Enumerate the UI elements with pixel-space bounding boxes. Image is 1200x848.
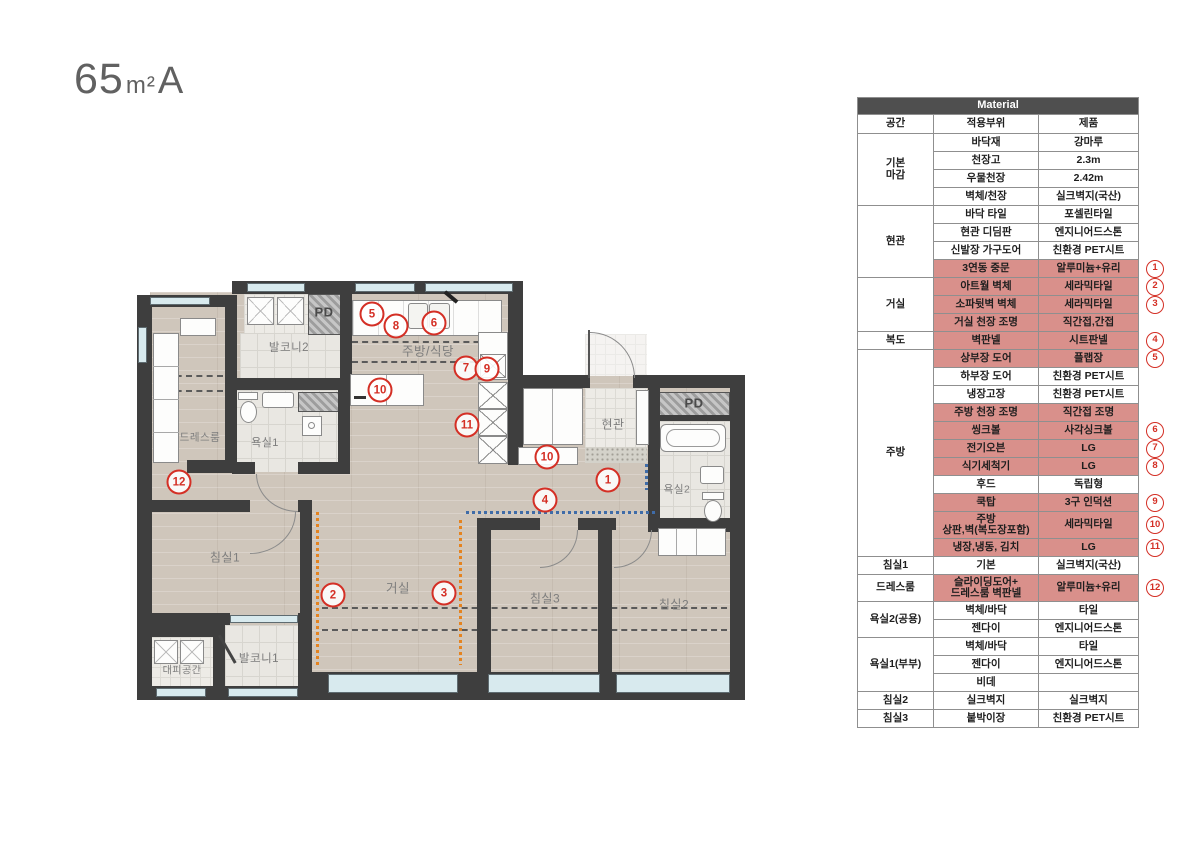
circled-number: 6	[1146, 422, 1164, 440]
cell-space: 드레스룸	[858, 575, 934, 602]
cell-part: 식기세척기	[934, 458, 1039, 476]
cell-number	[1139, 188, 1172, 206]
plan-marker-4: 4	[533, 488, 558, 513]
cell-part: 쿡탑	[934, 494, 1039, 512]
column-header-part: 적용부위	[934, 115, 1039, 134]
cell-space: 기본 마감	[858, 134, 934, 206]
wardrobe-shelf	[153, 366, 179, 367]
window	[247, 283, 305, 292]
circled-number: 5	[1146, 350, 1164, 368]
cell-number	[1139, 638, 1172, 656]
cell-part: 벽판넬	[934, 332, 1039, 350]
cell-space: 욕실2(공용)	[858, 602, 934, 638]
material-row: 욕실2(공용)벽체/바닥타일	[858, 602, 1172, 620]
cell-space: 침실1	[858, 557, 934, 575]
cell-product: 타일	[1039, 638, 1139, 656]
sink-icon	[700, 466, 724, 484]
cell-product: 세라믹타일	[1039, 296, 1139, 314]
cell-part: 천장고	[934, 152, 1039, 170]
cell-product: LG	[1039, 539, 1139, 557]
room-label-pd-right: PD	[684, 396, 703, 411]
ceiling-dash	[322, 629, 737, 631]
cell-part: 비데	[934, 674, 1039, 692]
wardrobe	[153, 333, 179, 463]
room-label-pd-left: PD	[314, 305, 333, 320]
cell-product: 타일	[1039, 602, 1139, 620]
cell-number	[1139, 710, 1172, 728]
cell-product: 엔지니어드스톤	[1039, 656, 1139, 674]
cell-product: 2.3m	[1039, 152, 1139, 170]
column-header-space: 공간	[858, 115, 934, 134]
closet-divider	[696, 529, 697, 555]
room-label-balcony2: 발코니2	[269, 339, 309, 355]
cell-product: 실크벽지	[1039, 692, 1139, 710]
plan-marker-3: 3	[432, 581, 457, 606]
cell-part: 붙박이장	[934, 710, 1039, 728]
cell-product: 플랩장	[1039, 350, 1139, 368]
toilet-tank-icon	[238, 392, 258, 400]
sofawall-marker-line	[459, 520, 462, 665]
dryer-icon	[277, 297, 304, 325]
material-row: 드레스룸슬라이딩도어+ 드레스룸 벽판넬알루미늄+유리12	[858, 575, 1172, 602]
cell-part: 기본	[934, 557, 1039, 575]
shoe-closet	[523, 388, 583, 445]
window	[156, 688, 206, 697]
cell-part: 주방 천장 조명	[934, 404, 1039, 422]
circled-number: 12	[1146, 579, 1164, 597]
cell-product: 강마루	[1039, 134, 1139, 152]
cell-space: 침실3	[858, 710, 934, 728]
cell-number: 11	[1139, 539, 1172, 557]
cell-number: 2	[1139, 278, 1172, 296]
wall	[137, 500, 250, 512]
cell-product: 독립형	[1039, 476, 1139, 494]
closet-divider	[552, 389, 553, 444]
window	[230, 615, 298, 623]
cell-part: 우물천장	[934, 170, 1039, 188]
room-label-bath1: 욕실1	[251, 434, 279, 450]
plan-marker-5: 5	[360, 302, 385, 327]
cell-part: 실크벽지	[934, 692, 1039, 710]
toilet-icon	[240, 401, 257, 423]
circled-number: 7	[1146, 440, 1164, 458]
closet-divider	[676, 529, 677, 555]
column-header-product: 제품	[1039, 115, 1139, 134]
materials-table-body: 기본 마감바닥재강마루천장고2.3m우물천장2.42m벽체/천장실크벽지(국산)…	[858, 134, 1172, 728]
window	[616, 674, 730, 693]
window	[228, 688, 298, 697]
material-row: 침실3붙박이장친환경 PET시트	[858, 710, 1172, 728]
refrigerator-cabinet	[478, 382, 508, 409]
cell-product: 친환경 PET시트	[1039, 368, 1139, 386]
cell-part: 후드	[934, 476, 1039, 494]
room-label-entrance: 현관	[601, 416, 624, 433]
cell-part: 전기오븐	[934, 440, 1039, 458]
wall	[340, 281, 352, 381]
room-label-bedroom3: 침실3	[530, 590, 560, 607]
room-label-evac: 대피공간	[163, 662, 202, 677]
room-label-living: 거실	[386, 578, 410, 597]
bathtub-inner	[666, 429, 720, 447]
materials-table-title: Material	[858, 98, 1139, 115]
room-label-bath2: 욕실2	[664, 482, 691, 497]
plan-marker-10: 10	[368, 378, 393, 403]
cell-product	[1039, 674, 1139, 692]
window	[425, 283, 513, 292]
circled-number: 10	[1146, 516, 1164, 534]
cell-product: 실크벽지(국산)	[1039, 188, 1139, 206]
cell-number: 5	[1139, 350, 1172, 368]
cell-space: 현관	[858, 206, 934, 278]
cell-space: 침실2	[858, 692, 934, 710]
cell-number: 12	[1139, 575, 1172, 602]
wardrobe-shelf	[153, 399, 179, 400]
cell-number	[1139, 242, 1172, 260]
material-row: 복도벽판넬시트판넬4	[858, 332, 1172, 350]
wall	[523, 375, 590, 388]
material-row: 기본 마감바닥재강마루	[858, 134, 1172, 152]
cell-product: 세라믹타일	[1039, 278, 1139, 296]
plan-marker-8: 8	[384, 314, 409, 339]
cell-number: 6	[1139, 422, 1172, 440]
cell-number	[1139, 476, 1172, 494]
cell-part: 냉장,냉동, 김치	[934, 539, 1039, 557]
wallpanel-marker-line	[466, 511, 656, 514]
window	[138, 327, 147, 363]
cell-part: 상부장 도어	[934, 350, 1039, 368]
plan-marker-2: 2	[321, 583, 346, 608]
circled-number: 9	[1146, 494, 1164, 512]
wall	[338, 378, 350, 474]
bedroom2-closet	[658, 528, 726, 556]
cell-number	[1139, 206, 1172, 224]
cell-number	[1139, 386, 1172, 404]
cell-part: 젠다이	[934, 656, 1039, 674]
wall	[598, 518, 612, 674]
entrance-step-stone	[585, 447, 647, 463]
cell-space: 거실	[858, 278, 934, 332]
cell-product: 실크벽지(국산)	[1039, 557, 1139, 575]
cell-space: 주방	[858, 350, 934, 557]
cell-product: 친환경 PET시트	[1039, 242, 1139, 260]
cell-product: LG	[1039, 458, 1139, 476]
cell-part: 하부장 도어	[934, 368, 1039, 386]
room-label-bedroom1: 침실1	[210, 549, 240, 566]
room-label-kitchen-dining: 주방/식당	[402, 341, 454, 360]
wall	[656, 415, 730, 421]
plan-marker-6: 6	[422, 311, 447, 336]
refrigerator-cabinet	[478, 409, 508, 436]
material-row: 욕실1(부부)벽체/바닥타일	[858, 638, 1172, 656]
cell-number	[1139, 602, 1172, 620]
title-area: 65	[74, 55, 124, 103]
room-label-bedroom2: 침실2	[659, 596, 689, 613]
cell-part: 현관 디딤판	[934, 224, 1039, 242]
cell-part: 아트월 벽체	[934, 278, 1039, 296]
cell-space: 욕실1(부부)	[858, 638, 934, 692]
wall	[137, 613, 230, 625]
artwall-marker-line	[316, 512, 319, 668]
cell-number	[1139, 692, 1172, 710]
cell-product: 알루미늄+유리	[1039, 260, 1139, 278]
cell-product: 친환경 PET시트	[1039, 710, 1139, 728]
cell-number	[1139, 557, 1172, 575]
cell-product: 세라믹타일	[1039, 512, 1139, 539]
cell-number: 3	[1139, 296, 1172, 314]
cell-part: 벽체/바닥	[934, 638, 1039, 656]
cell-number: 7	[1139, 440, 1172, 458]
wall	[187, 460, 232, 473]
cell-product: 알루미늄+유리	[1039, 575, 1139, 602]
cell-part: 바닥재	[934, 134, 1039, 152]
plan-marker-9: 9	[475, 357, 500, 382]
wall	[232, 378, 352, 390]
cell-product: LG	[1039, 440, 1139, 458]
refrigerator-cabinet	[478, 436, 508, 464]
cell-number	[1139, 314, 1172, 332]
cell-part: 젠다이	[934, 620, 1039, 638]
wall	[298, 613, 312, 700]
cell-part: 바닥 타일	[934, 206, 1039, 224]
material-row: 현관바닥 타일포셀린타일	[858, 206, 1172, 224]
cell-number	[1139, 656, 1172, 674]
cell-part: 거실 천장 조명	[934, 314, 1039, 332]
cell-part: 씽크볼	[934, 422, 1039, 440]
evac-panel	[154, 640, 178, 664]
material-row: 침실1기본실크벽지(국산)	[858, 557, 1172, 575]
wall	[477, 518, 491, 674]
cell-product: 엔지니어드스톤	[1039, 224, 1139, 242]
wall	[633, 375, 745, 388]
cell-number	[1139, 134, 1172, 152]
cell-number: 8	[1139, 458, 1172, 476]
island-handle	[354, 396, 366, 399]
page: 65m²A	[0, 0, 1200, 848]
cell-number	[1139, 404, 1172, 422]
plan-marker-12: 12	[167, 470, 192, 495]
room-label-balcony1: 발코니1	[239, 650, 279, 666]
plan-marker-11: 11	[455, 413, 480, 438]
cell-number: 10	[1139, 512, 1172, 539]
evac-panel	[180, 640, 204, 664]
shower-drain-icon	[308, 422, 315, 429]
material-row: 침실2실크벽지실크벽지	[858, 692, 1172, 710]
cell-number	[1139, 368, 1172, 386]
dressroom-cabinet	[180, 318, 216, 336]
cell-part: 주방 상판,벽(복도장포함)	[934, 512, 1039, 539]
cell-product: 친환경 PET시트	[1039, 386, 1139, 404]
cell-part: 3연동 중문	[934, 260, 1039, 278]
wall	[508, 281, 523, 465]
entrance-closet	[636, 390, 649, 445]
circled-number: 4	[1146, 332, 1164, 350]
wall	[232, 462, 255, 474]
circled-number: 2	[1146, 278, 1164, 296]
cell-number: 4	[1139, 332, 1172, 350]
title-unit: m²	[126, 72, 156, 99]
cell-space: 복도	[858, 332, 934, 350]
cell-number	[1139, 620, 1172, 638]
toilet-tank-icon	[702, 492, 724, 500]
window	[150, 297, 210, 305]
wall	[730, 375, 745, 700]
cell-part: 소파뒷벽 벽체	[934, 296, 1039, 314]
circled-number: 11	[1146, 539, 1164, 557]
cell-number: 9	[1139, 494, 1172, 512]
cell-part: 벽체/바닥	[934, 602, 1039, 620]
duct-shaft	[298, 392, 340, 412]
cell-part: 신발장 가구도어	[934, 242, 1039, 260]
cell-product: 포셀린타일	[1039, 206, 1139, 224]
cell-product: 직간접,간접	[1039, 314, 1139, 332]
numcol-spacer	[1139, 115, 1172, 134]
cell-part: 슬라이딩도어+ 드레스룸 벽판넬	[934, 575, 1039, 602]
title-plan-type: A	[158, 60, 184, 102]
plan-marker-1: 1	[596, 468, 621, 493]
washer-icon	[247, 297, 274, 325]
cell-product: 3구 인덕션	[1039, 494, 1139, 512]
material-row: 주방상부장 도어플랩장5	[858, 350, 1172, 368]
cell-product: 시트판넬	[1039, 332, 1139, 350]
cell-number	[1139, 170, 1172, 188]
cell-number	[1139, 224, 1172, 242]
window	[355, 283, 415, 292]
wardrobe-shelf	[153, 432, 179, 433]
cell-product: 엔지니어드스톤	[1039, 620, 1139, 638]
wall	[137, 625, 225, 637]
toilet-icon	[704, 500, 722, 522]
plan-marker-10: 10	[535, 445, 560, 470]
window	[328, 674, 458, 693]
room-label-dressroom: 드레스룸	[180, 430, 221, 445]
materials-table: Material 공간 적용부위 제품 기본 마감바닥재강마루천장고2.3m우물…	[857, 97, 1172, 728]
material-row: 거실아트월 벽체세라믹타일2	[858, 278, 1172, 296]
window	[488, 674, 600, 693]
cell-number: 1	[1139, 260, 1172, 278]
circled-number: 1	[1146, 260, 1164, 278]
circled-number: 8	[1146, 458, 1164, 476]
cell-number	[1139, 152, 1172, 170]
sink-icon	[262, 392, 294, 408]
cell-product: 사각싱크볼	[1039, 422, 1139, 440]
cell-product: 직간접 조명	[1039, 404, 1139, 422]
middle-door-marker-line	[645, 464, 648, 490]
page-title: 65m²A	[74, 55, 184, 104]
cell-part: 벽체/천장	[934, 188, 1039, 206]
cell-number	[1139, 674, 1172, 692]
cell-product: 2.42m	[1039, 170, 1139, 188]
numcol-spacer	[1139, 98, 1172, 115]
cell-part: 냉장고장	[934, 386, 1039, 404]
wall	[648, 388, 660, 530]
circled-number: 3	[1146, 296, 1164, 314]
